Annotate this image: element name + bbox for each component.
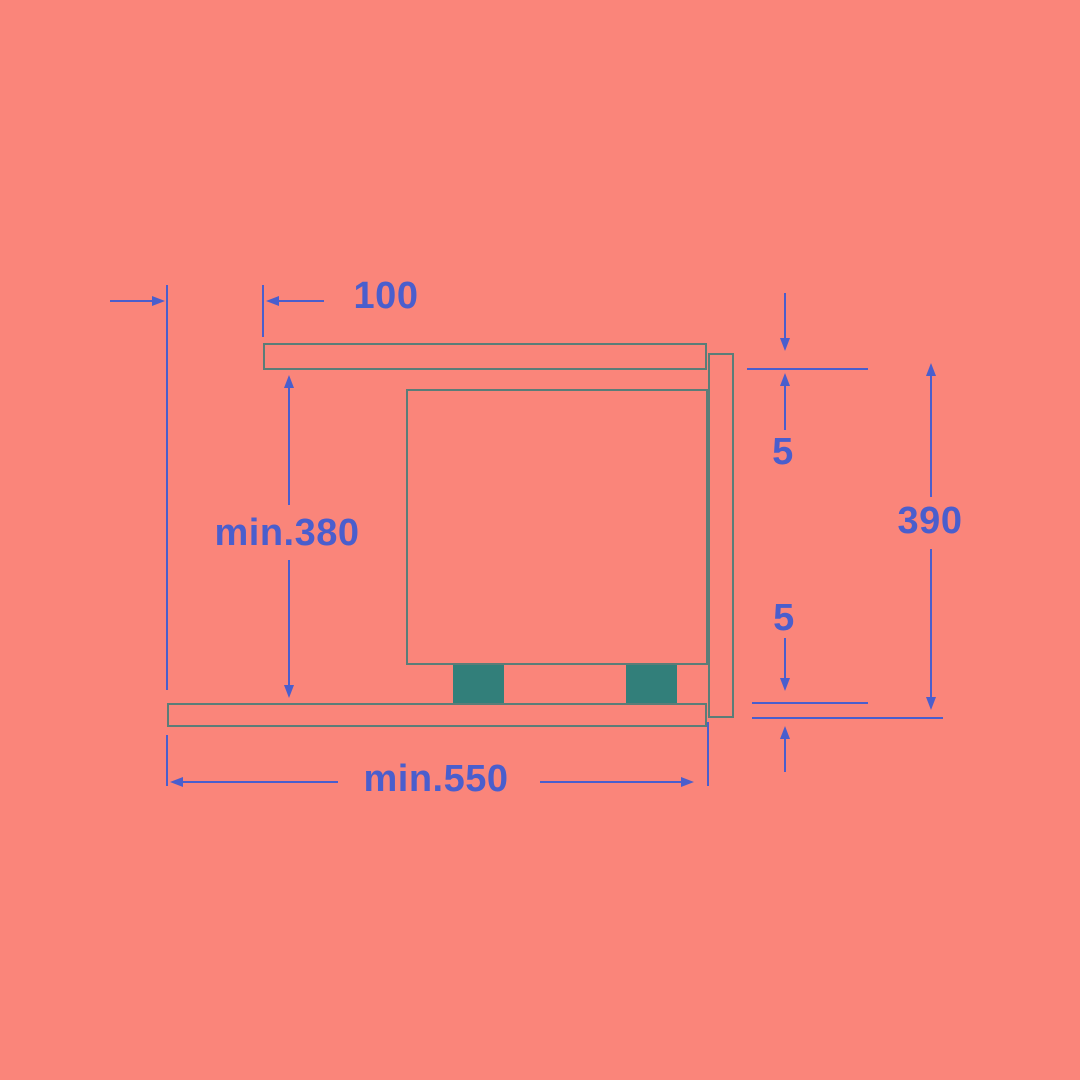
dim-5-top-arrow-line-up — [784, 386, 786, 430]
dim-550-extension-line — [707, 722, 709, 786]
wall-extension-line-lower — [166, 735, 168, 786]
dim-380-arrowhead-down-icon — [284, 685, 294, 698]
appliance-foot-left — [453, 665, 504, 703]
dim-100-label: 100 — [354, 277, 419, 315]
appliance-front-panel — [708, 353, 734, 718]
dim-390-line-upper — [930, 376, 932, 497]
dim-550-arrowhead-left-icon — [170, 777, 183, 787]
dim-100-arrowhead-left-icon — [266, 296, 279, 306]
dim-5-bottom-reference-line-upper — [752, 702, 868, 704]
cabinet-top-panel — [263, 343, 707, 370]
dim-100-extension-line — [262, 285, 264, 337]
dim-5-top-arrowhead-up-icon — [780, 373, 790, 386]
dim-390-line-lower — [930, 549, 932, 697]
installation-diagram: 100 min.380 5 390 5 min.550 — [0, 0, 1080, 1080]
dim-380-line-upper — [288, 387, 290, 505]
dim-5-bottom-label: 5 — [773, 599, 795, 637]
cabinet-bottom-panel — [167, 703, 707, 727]
dim-550-line-right — [540, 781, 681, 783]
dim-5-bottom-arrowhead-down-icon — [780, 678, 790, 691]
dim-5-bottom-reference-line-lower — [752, 717, 943, 719]
appliance-body — [406, 389, 708, 665]
dim-5-top-reference-line — [747, 368, 868, 370]
dim-550-line-left — [183, 781, 338, 783]
dim-550-label: min.550 — [363, 760, 508, 798]
dim-5-bottom-arrowhead-up-icon — [780, 726, 790, 739]
dim-390-label: 390 — [898, 502, 963, 540]
dim-5-top-arrow-line-down — [784, 293, 786, 338]
dim-380-line-lower — [288, 560, 290, 685]
dim-380-label: min.380 — [214, 514, 359, 552]
dim-100-arrow-line-right — [279, 300, 324, 302]
dim-5-bottom-arrow-line-down — [784, 638, 786, 678]
appliance-foot-right — [626, 665, 677, 703]
dim-5-top-label: 5 — [772, 433, 794, 471]
dim-390-arrowhead-down-icon — [926, 697, 936, 710]
dim-5-bottom-arrow-line-up — [784, 739, 786, 772]
dim-100-arrow-line-left — [110, 300, 152, 302]
dim-100-arrowhead-right-icon — [152, 296, 165, 306]
dim-5-top-arrowhead-down-icon — [780, 338, 790, 351]
wall-extension-line-upper — [166, 285, 168, 690]
dim-550-arrowhead-right-icon — [681, 777, 694, 787]
dim-390-arrowhead-up-icon — [926, 363, 936, 376]
